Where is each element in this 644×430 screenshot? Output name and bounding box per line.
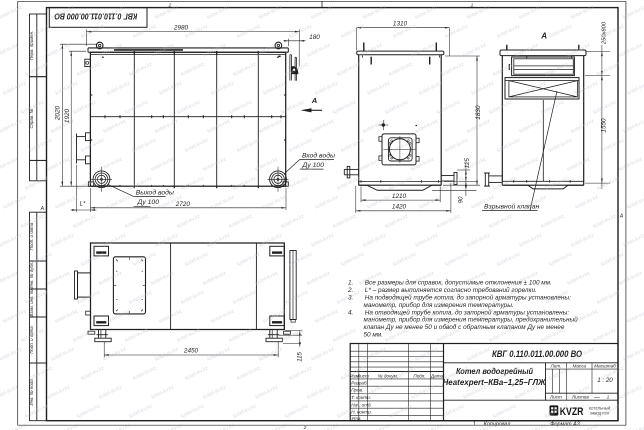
svg-text:1: 1 — [471, 2, 474, 8]
svg-text:Пров.: Пров. — [351, 388, 363, 393]
svg-text:Масштаб: Масштаб — [594, 364, 616, 369]
svg-text:А: А — [619, 214, 624, 220]
svg-text:2: 2 — [303, 425, 307, 430]
svg-text:манометр, прибор для измерения: манометр, прибор для измерения температу… — [364, 301, 514, 309]
svg-text:Вход воды: Вход воды — [302, 151, 335, 159]
svg-text:1550: 1550 — [601, 118, 608, 133]
svg-text:1: 1 — [607, 395, 610, 401]
svg-text:L*: L* — [80, 202, 86, 208]
svg-text:2020: 2020 — [55, 105, 62, 121]
svg-text:2980: 2980 — [173, 25, 189, 32]
svg-text:2450: 2450 — [183, 348, 199, 355]
svg-text:Масса: Масса — [573, 364, 587, 369]
svg-text:1: 1 — [473, 421, 476, 427]
svg-text:1420: 1420 — [392, 204, 407, 211]
svg-text:Выход воды: Выход воды — [136, 188, 174, 196]
svg-text:4.: 4. — [348, 309, 353, 316]
svg-text:1.: 1. — [348, 280, 353, 287]
svg-text:Ду 100: Ду 100 — [137, 199, 160, 206]
svg-text:клапан Ду не менее 50 и обвод: клапан Ду не менее 50 и обвод с обратным… — [364, 323, 565, 331]
svg-text:Heatexpert–КВа–1,25–ГЛЖ: Heatexpert–КВа–1,25–ГЛЖ — [443, 378, 546, 387]
svg-text:1210: 1210 — [392, 193, 407, 200]
svg-text:Формат А3: Формат А3 — [550, 421, 580, 427]
svg-text:Подп. и дата: Подп. и дата — [29, 222, 34, 250]
svg-text:Дата: Дата — [430, 373, 444, 378]
svg-text:А: А — [311, 96, 317, 105]
svg-text:1310: 1310 — [393, 21, 408, 28]
svg-text:А: А — [40, 206, 45, 212]
svg-text:50 мм.: 50 мм. — [364, 332, 383, 339]
svg-text:180: 180 — [309, 34, 320, 41]
svg-text:115: 115 — [297, 352, 303, 362]
svg-text:Разраб.: Разраб. — [351, 380, 368, 385]
svg-text:Инв. № подл.: Инв. № подл. — [29, 378, 34, 405]
svg-text:Лит.: Лит. — [550, 364, 562, 369]
svg-text:А: А — [540, 32, 547, 41]
svg-text:Подп.: Подп. — [413, 373, 425, 378]
svg-text:90: 90 — [458, 196, 464, 203]
svg-text:1830: 1830 — [475, 105, 482, 120]
svg-text:Лист: Лист — [549, 395, 562, 400]
svg-text:Утв.: Утв. — [351, 416, 361, 421]
